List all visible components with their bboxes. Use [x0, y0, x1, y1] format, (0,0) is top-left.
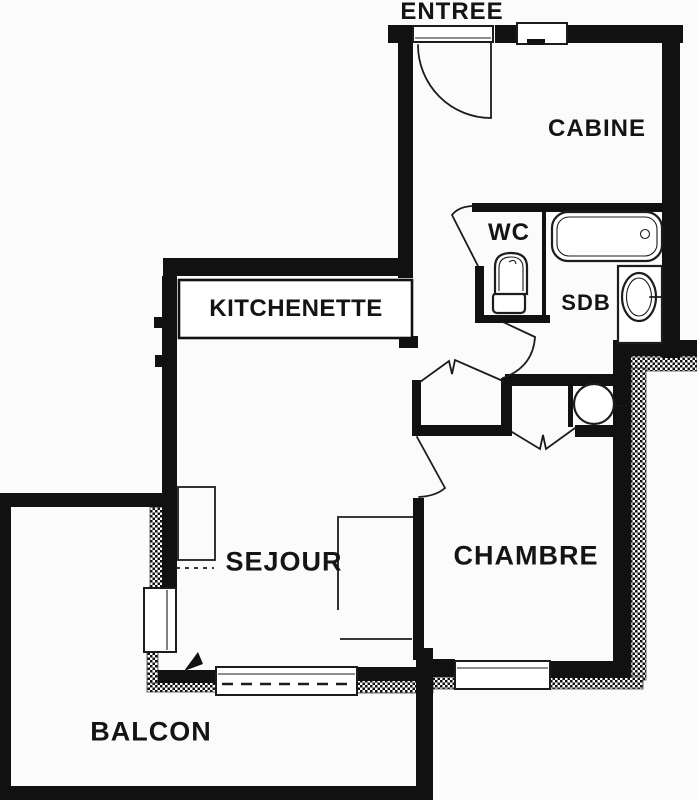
windows [144, 23, 567, 695]
room-label-wc: WC [488, 221, 530, 245]
room-label-cabine: CABINE [548, 117, 646, 141]
room-label-balcon: BALCON [90, 719, 212, 746]
hall-closet-bifold-doors [420, 360, 503, 382]
room-label-sejour: SEJOUR [225, 549, 342, 576]
balcony-door-swing-marker [184, 652, 203, 671]
kitchen-counter [176, 487, 215, 568]
floor-plan: ENTREE CABINE WC SDB KITCHENETTE SEJOUR … [0, 0, 697, 800]
sink-icon [618, 266, 662, 343]
entry-door [418, 43, 491, 118]
chambre-closet-bifold-doors [512, 428, 575, 449]
wc-door [452, 206, 478, 266]
room-label-chambre: CHAMBRE [454, 543, 599, 570]
bathtub-icon [552, 212, 662, 261]
room-label-sdb: SDB [561, 292, 610, 314]
room-label-entree: ENTREE [400, 0, 503, 24]
chambre-door [417, 437, 445, 497]
sejour-furniture [338, 517, 413, 639]
sdb-door [503, 322, 535, 378]
toilet-icon [493, 253, 527, 313]
room-label-kitchenette: KITCHENETTE [209, 297, 383, 321]
